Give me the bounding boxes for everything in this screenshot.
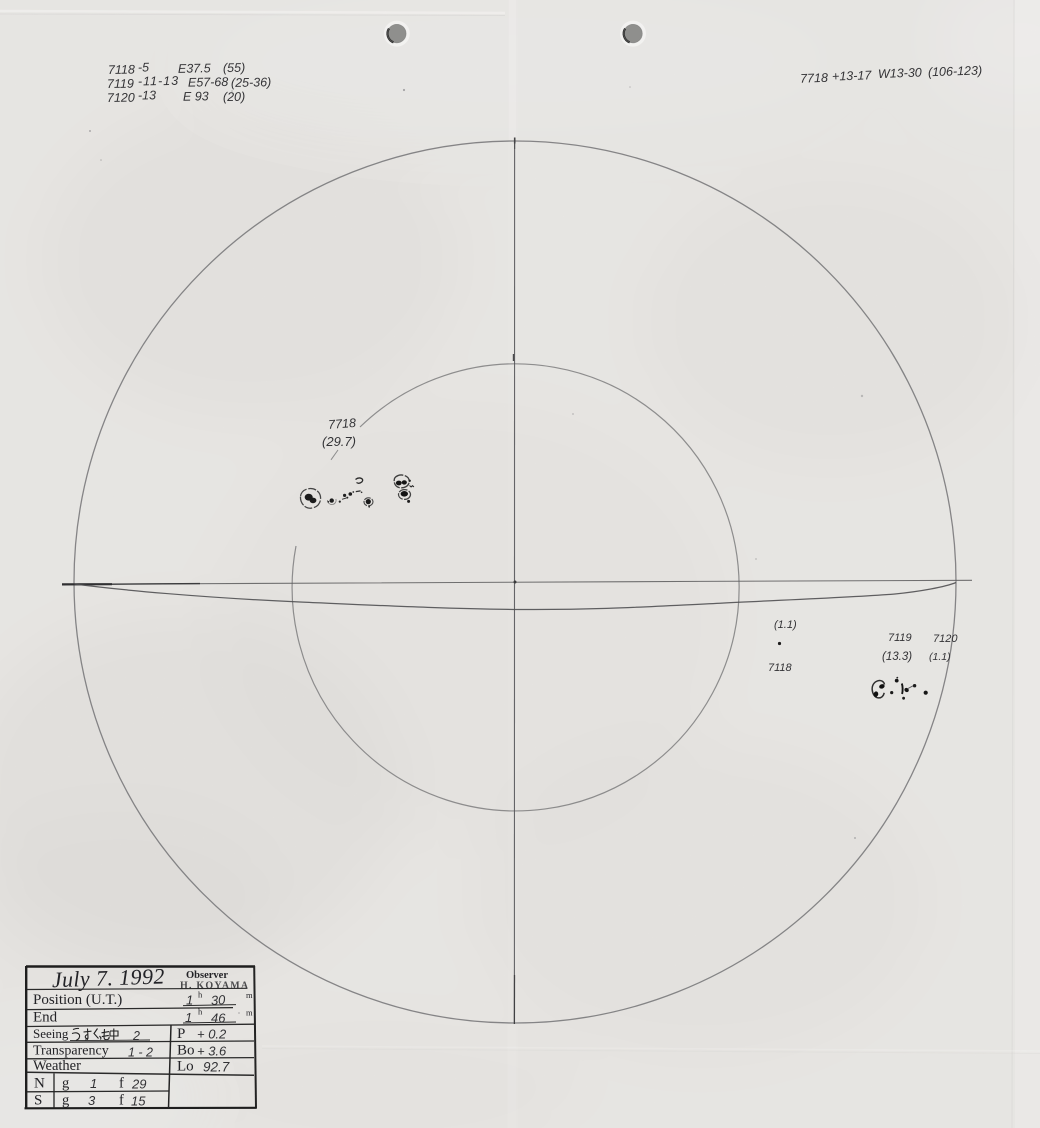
svg-text:Observer: Observer (186, 970, 228, 981)
svg-text:(1.1): (1.1) (774, 619, 797, 631)
svg-text:3: 3 (88, 1093, 96, 1108)
svg-text:S: S (34, 1093, 42, 1109)
svg-text:End: End (33, 1010, 58, 1026)
svg-text:1: 1 (90, 1076, 97, 1091)
svg-text:m: m (246, 990, 253, 1000)
svg-text:m: m (246, 1008, 253, 1018)
svg-text:Transparency: Transparency (33, 1044, 109, 1059)
svg-text:+ 3.6: + 3.6 (197, 1044, 227, 1059)
svg-text:(29.7): (29.7) (322, 434, 356, 449)
svg-text:7119: 7119 (888, 632, 912, 644)
svg-text:2: 2 (132, 1029, 140, 1043)
svg-text:f: f (119, 1076, 124, 1092)
svg-text:46: 46 (211, 1011, 226, 1026)
svg-text:+ 0.2: + 0.2 (197, 1027, 227, 1042)
svg-text:29: 29 (131, 1077, 146, 1092)
svg-text:30: 30 (210, 992, 226, 1008)
svg-text:Bo: Bo (177, 1043, 195, 1059)
svg-text:(1.1): (1.1) (929, 651, 951, 663)
svg-text:7118: 7118 (768, 662, 793, 674)
svg-text:g: g (62, 1093, 69, 1109)
svg-text:(13.3): (13.3) (882, 651, 912, 663)
svg-text:Lo: Lo (177, 1059, 194, 1075)
svg-text:Position (U.T.): Position (U.T.) (33, 992, 122, 1008)
svg-text:7120: 7120 (933, 633, 958, 645)
svg-text:H. KOYAMA: H. KOYAMA (180, 981, 249, 992)
svg-text:g: g (62, 1076, 69, 1092)
svg-text:July 7. 1992: July 7. 1992 (51, 963, 165, 992)
svg-text:Seeing: Seeing (33, 1026, 69, 1041)
svg-text:15: 15 (131, 1094, 146, 1109)
svg-text:P: P (177, 1026, 185, 1042)
svg-text:f: f (119, 1093, 124, 1109)
svg-text:N: N (34, 1076, 45, 1092)
svg-text:1: 1 (186, 993, 193, 1008)
svg-text:Weather: Weather (33, 1058, 81, 1074)
svg-text:1 - 2: 1 - 2 (128, 1046, 153, 1060)
svg-text:1: 1 (185, 1010, 192, 1025)
svg-text:92.7: 92.7 (203, 1060, 230, 1075)
svg-text:7718: 7718 (328, 416, 357, 432)
